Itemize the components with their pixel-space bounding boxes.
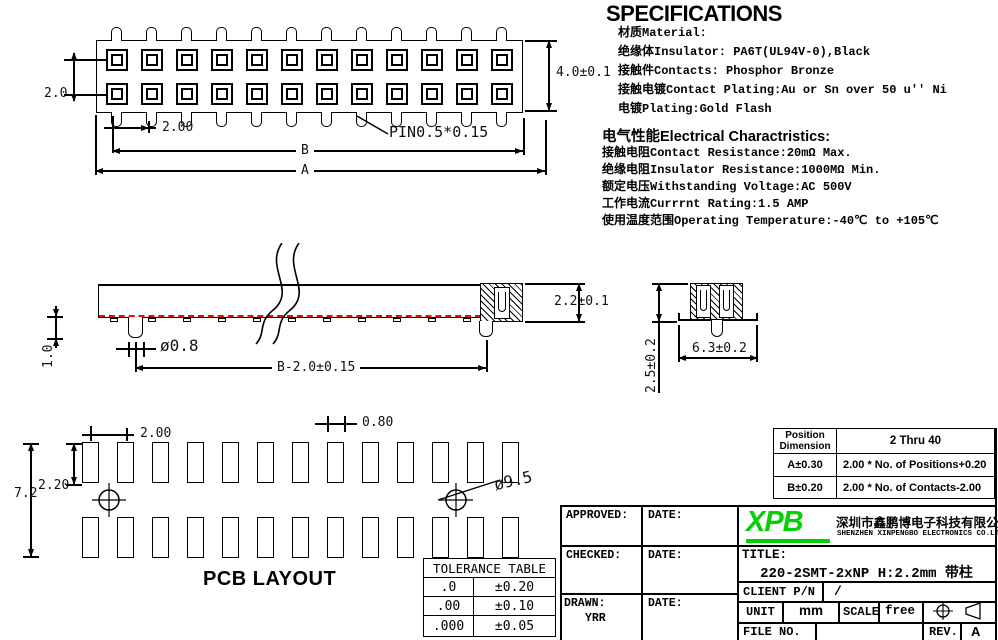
pcb-pad	[257, 517, 274, 558]
third-angle-cone-icon	[966, 603, 980, 619]
pcb-pad	[152, 442, 169, 483]
tolerance-table-title: TOLERANCE TABLE	[424, 559, 556, 578]
table-cell: .00	[424, 597, 474, 616]
dim-peg-length: 1.0	[42, 345, 55, 368]
frame-line	[782, 601, 784, 622]
spec-line: 绝缘体Insulator: PA6T(UL94V-0),Black	[618, 43, 947, 62]
rev-label: REV.	[929, 625, 958, 639]
pcb-pad	[362, 442, 379, 483]
date-label: DATE:	[648, 549, 683, 562]
frame-line	[815, 622, 817, 640]
contact-spring	[723, 290, 730, 311]
scale-label: SCALE	[843, 605, 879, 619]
table-cell: ±0.10	[474, 597, 556, 616]
solder-foot	[148, 318, 156, 322]
locating-hole-crosshair	[89, 480, 129, 520]
pin-lead	[461, 27, 472, 41]
arrow	[28, 549, 34, 557]
locating-peg	[711, 320, 723, 337]
frame-line	[560, 505, 562, 640]
pin-lead	[321, 112, 332, 127]
arrow	[95, 168, 103, 174]
arrow	[576, 314, 582, 322]
frame-line	[922, 601, 924, 640]
position-table-header-cell: Position Dimension	[774, 429, 837, 454]
pin-note: PIN0.5*0.15	[389, 126, 488, 139]
title-label: TITLE:	[742, 548, 787, 562]
dim-line	[82, 434, 134, 436]
pcb-pad	[82, 442, 99, 483]
unit-label: UNIT	[746, 605, 775, 619]
contact-square	[246, 83, 268, 105]
pcb-pad	[117, 517, 134, 558]
table-cell: ±0.05	[474, 616, 556, 637]
arrow	[28, 443, 34, 451]
frame-line	[838, 601, 840, 622]
locating-peg	[128, 317, 143, 338]
contact-square	[106, 83, 128, 105]
frame-line	[960, 622, 962, 640]
contact-square	[386, 83, 408, 105]
dim-line	[95, 170, 545, 172]
dim-span: B-2.0±0.15	[272, 361, 360, 374]
ext-line	[128, 342, 130, 357]
arrow	[515, 148, 523, 154]
ext-line	[545, 120, 547, 175]
arrow	[750, 355, 758, 361]
contact-slot	[494, 287, 510, 319]
table-cell: .0	[424, 578, 474, 597]
engineering-drawing-sheet: SPECIFICATIONS 材质Material: 绝缘体Insulator:…	[0, 0, 998, 640]
pcb-pad	[432, 517, 449, 558]
solder-foot	[428, 318, 436, 322]
frame-line	[560, 593, 737, 595]
spec-line: 材质Material:	[618, 24, 947, 43]
pin-lead	[216, 112, 227, 127]
contact-slot	[696, 285, 711, 318]
contact-square	[491, 83, 513, 105]
contact-square	[456, 49, 478, 71]
company-name-cn: 深圳市鑫鹏博电子科技有限公司	[836, 512, 998, 531]
solder-foot	[110, 318, 118, 322]
spec-line: 绝缘电阻Insulator Resistance:1000MΩ Min.	[602, 162, 939, 179]
dim-line	[678, 357, 758, 359]
pin-lead	[216, 27, 227, 41]
arrow	[71, 477, 77, 485]
contact-square	[246, 49, 268, 71]
dim-height: 2.2±0.1	[554, 295, 609, 308]
contact-square	[176, 49, 198, 71]
dim-pcb-pitch: 2.00	[140, 427, 171, 440]
dim-line	[112, 150, 523, 152]
contact-square	[316, 49, 338, 71]
pcb-pad	[187, 517, 204, 558]
contact-square	[281, 83, 303, 105]
arrow	[478, 365, 486, 371]
spec-line: 使用温度范围Operating Temperature:-40℃ to +105…	[602, 213, 939, 230]
ext-line	[525, 110, 557, 112]
dim-peg-dia: ø0.8	[160, 338, 199, 354]
contact-square	[141, 83, 163, 105]
frame-line	[560, 545, 997, 547]
scale-value: free	[885, 604, 915, 618]
spec-line: 工作电流Currrnt Rating:1.5 AMP	[602, 196, 939, 213]
contact-square	[351, 83, 373, 105]
dim-line	[315, 423, 357, 425]
pin-lead	[391, 27, 402, 41]
frame-line	[641, 505, 643, 640]
approved-label: APPROVED:	[566, 509, 628, 522]
pcb-pad	[187, 442, 204, 483]
ext-line	[486, 340, 488, 372]
dim-row-span: 7.2	[14, 487, 37, 500]
pin-lead	[251, 27, 262, 41]
header-line: Position	[774, 430, 836, 441]
dim-body-height: 4.0±0.1	[556, 66, 611, 79]
solder-foot	[218, 318, 226, 322]
pin-lead	[356, 27, 367, 41]
solder-foot	[393, 318, 401, 322]
dim-row-pitch: 2.0	[44, 87, 67, 100]
pcb-pad	[327, 442, 344, 483]
company-logo: XPB	[746, 508, 803, 537]
dim-end-width: 6.3±0.2	[692, 342, 747, 355]
arrow	[141, 125, 149, 131]
material-spec-lines: 材质Material: 绝缘体Insulator: PA6T(UL94V-0),…	[618, 24, 947, 119]
table-cell: 2.00 * No. of Positions+0.20	[837, 454, 995, 477]
flange-end	[756, 313, 758, 321]
pin-lead	[111, 27, 122, 41]
dim-pitch: 2.00	[162, 121, 193, 134]
tolerance-table: TOLERANCE TABLE .0 ±0.20 .00 ±0.10 .000 …	[423, 558, 556, 637]
contact-square	[351, 49, 373, 71]
contact-square	[176, 83, 198, 105]
pcb-pad	[257, 442, 274, 483]
pin-lead	[181, 27, 192, 41]
pin-lead	[496, 112, 507, 127]
spec-line: 额定电压Withstanding Voltage:AC 500V	[602, 179, 939, 196]
contact-square	[281, 49, 303, 71]
arrow	[135, 365, 143, 371]
spec-line: 电镀Plating:Gold Flash	[618, 100, 947, 119]
client-pn-value: /	[834, 584, 842, 599]
checked-label: CHECKED:	[566, 549, 621, 562]
pin-lead	[496, 27, 507, 41]
solder-foot	[183, 318, 191, 322]
arrow	[546, 103, 552, 111]
break-line-squiggle	[246, 243, 316, 345]
ext-line	[143, 342, 145, 357]
pcb-pad	[82, 517, 99, 558]
contact-square	[386, 49, 408, 71]
pin-lead	[286, 27, 297, 41]
contact-square	[211, 83, 233, 105]
pcb-pad	[222, 442, 239, 483]
arrow	[546, 40, 552, 48]
pcb-pad	[502, 517, 519, 558]
arrow	[678, 355, 686, 361]
dim-span-b: B	[296, 144, 314, 157]
pcb-pad	[397, 517, 414, 558]
contact-square	[421, 49, 443, 71]
contact-spring	[700, 290, 707, 311]
drawn-by-value: YRR	[585, 612, 606, 625]
arrow	[656, 314, 662, 322]
pcb-pad	[362, 517, 379, 558]
arrow	[656, 283, 662, 291]
date-label: DATE:	[648, 509, 683, 522]
position-table: Position Dimension 2 Thru 40 A±0.30 2.00…	[773, 428, 995, 499]
pcb-pad	[117, 442, 134, 483]
arrow	[112, 148, 120, 154]
pcb-layout-label: PCB LAYOUT	[203, 568, 336, 591]
table-cell: B±0.20	[774, 477, 837, 499]
position-table-range-cell: 2 Thru 40	[837, 429, 995, 454]
contact-square	[421, 83, 443, 105]
contact-square	[316, 83, 338, 105]
dim-end-height: 2.5±0.2	[645, 338, 658, 393]
unit-value: mm	[799, 603, 823, 618]
pcb-pad	[397, 442, 414, 483]
contact-square	[456, 83, 478, 105]
solder-foot	[323, 318, 331, 322]
dim-pad-width: 0.80	[362, 416, 393, 429]
pcb-pad	[327, 517, 344, 558]
company-logo-underline	[746, 539, 830, 543]
part-title: 220-2SMT-2xNP H:2.2mm 带柱	[737, 562, 996, 582]
projection-symbols	[928, 602, 992, 621]
spec-line: 接触电阻Contact Resistance:20mΩ Max.	[602, 145, 939, 162]
drawn-label: DRAWN:	[564, 597, 605, 610]
client-pn-label: CLIENT P/N	[743, 585, 815, 599]
contact-square	[141, 49, 163, 71]
contact-spring	[498, 292, 506, 312]
pin-lead	[146, 27, 157, 41]
ext-line	[525, 40, 557, 42]
contact-square	[106, 49, 128, 71]
locating-peg	[479, 321, 493, 337]
electrical-heading: 电气性能Electrical Charactristics:	[602, 125, 830, 146]
table-cell: 2.00 * No. of Contacts-2.00	[837, 477, 995, 499]
contact-square	[211, 49, 233, 71]
contact-slot	[719, 285, 734, 318]
pcb-pad	[292, 517, 309, 558]
electrical-spec-lines: 接触电阻Contact Resistance:20mΩ Max. 绝缘电阻Ins…	[602, 145, 939, 230]
arrow	[576, 283, 582, 291]
arrow	[71, 94, 77, 102]
ext-line	[523, 118, 525, 155]
spec-line: 接触电镀Contact Plating:Au or Sn over 50 u''…	[618, 81, 947, 100]
pin-lead	[321, 27, 332, 41]
dim-span-a: A	[296, 164, 314, 177]
arrow	[53, 309, 59, 317]
header-line: Dimension	[774, 441, 836, 452]
pcb-pad	[467, 517, 484, 558]
solder-foot	[463, 318, 471, 322]
pin-lead	[286, 112, 297, 127]
rev-value: A	[971, 624, 980, 639]
pcb-pad	[152, 517, 169, 558]
pin-lead	[251, 112, 262, 127]
arrow	[71, 52, 77, 60]
flange-end	[678, 313, 680, 321]
ext-line	[95, 115, 97, 175]
dim-pad-height: 2.20	[38, 479, 69, 492]
pcb-pad	[292, 442, 309, 483]
solder-foot	[358, 318, 366, 322]
frame-line	[822, 581, 824, 601]
spec-line: 接触件Contacts: Phosphor Bronze	[618, 62, 947, 81]
contact-square	[491, 49, 513, 71]
dim-line	[548, 40, 550, 110]
arrow	[537, 168, 545, 174]
frame-line	[737, 622, 997, 624]
table-cell: A±0.30	[774, 454, 837, 477]
date-label: DATE:	[648, 597, 683, 610]
company-name-en: SHENZHEN XINPENGBO ELECTRONICS CO.LTD	[837, 530, 998, 538]
table-cell: ±0.20	[474, 578, 556, 597]
file-no-label: FILE NO.	[743, 625, 801, 639]
table-cell: .000	[424, 616, 474, 637]
pin-lead	[426, 27, 437, 41]
arrow	[71, 443, 77, 451]
pcb-pad	[222, 517, 239, 558]
